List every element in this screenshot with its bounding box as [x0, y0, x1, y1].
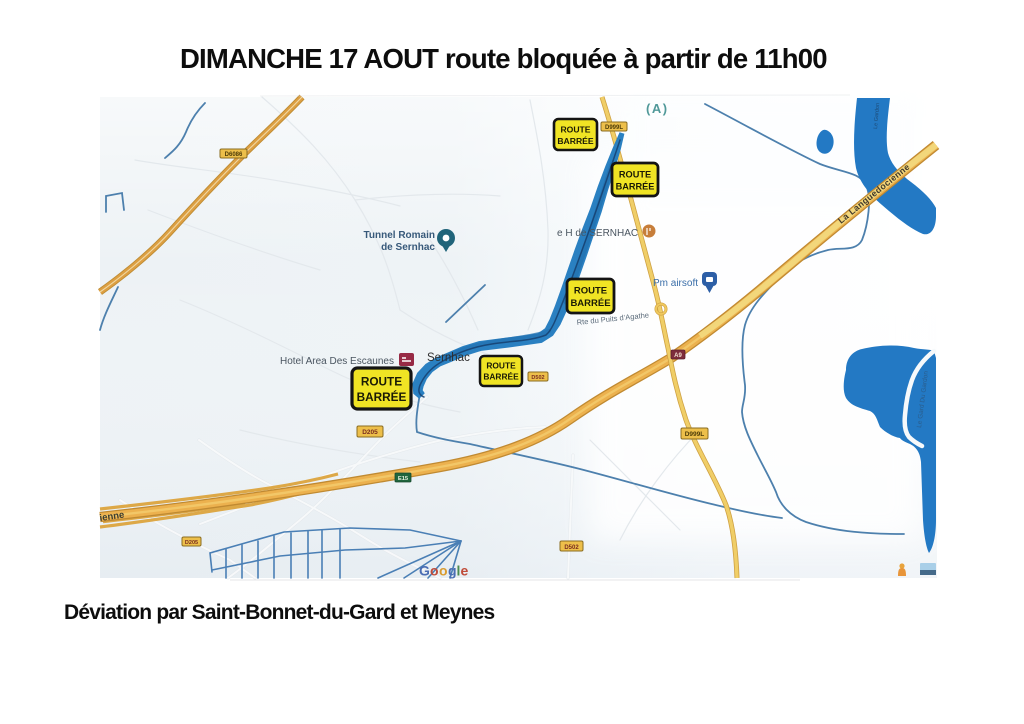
svg-text:Pm airsoft: Pm airsoft: [653, 278, 698, 289]
svg-text:ROUTE: ROUTE: [486, 361, 516, 371]
svg-text:D6086: D6086: [225, 152, 243, 158]
svg-text:ROUTE: ROUTE: [361, 375, 402, 389]
svg-text:A9: A9: [674, 353, 682, 359]
svg-text:D502: D502: [564, 545, 579, 551]
svg-text:BARRÉE: BARRÉE: [557, 136, 594, 146]
svg-text:D502: D502: [531, 375, 544, 381]
svg-text:E15: E15: [398, 476, 409, 482]
svg-text:Sernhac: Sernhac: [427, 352, 470, 364]
svg-text:ROUTE: ROUTE: [560, 125, 590, 135]
svg-text:o: o: [439, 563, 448, 579]
svg-text:Hotel Area Des Escaunes: Hotel Area Des Escaunes: [280, 356, 394, 367]
svg-text:BARRÉE: BARRÉE: [570, 298, 610, 309]
svg-text:D999L: D999L: [685, 431, 705, 438]
svg-text:BARRÉE: BARRÉE: [357, 390, 407, 404]
svg-text:BARRÉE: BARRÉE: [616, 181, 655, 192]
svg-text:Tunnel Romain: Tunnel Romain: [364, 230, 435, 241]
svg-text:D999L: D999L: [605, 125, 623, 131]
svg-text:D205: D205: [185, 540, 198, 546]
svg-text:o: o: [430, 563, 439, 579]
svg-text:de Sernhac: de Sernhac: [381, 242, 435, 253]
svg-text:BARRÉE: BARRÉE: [483, 371, 519, 382]
svg-text:(A): (A): [646, 101, 669, 116]
svg-text:e: e: [461, 563, 469, 579]
svg-text:D205: D205: [362, 429, 378, 436]
svg-text:g: g: [448, 563, 457, 579]
svg-text:ROUTE: ROUTE: [574, 286, 607, 297]
svg-text:G: G: [419, 563, 430, 579]
svg-text:ROUTE: ROUTE: [619, 170, 651, 180]
svg-text:e H de SERNHAC: e H de SERNHAC: [557, 228, 638, 239]
